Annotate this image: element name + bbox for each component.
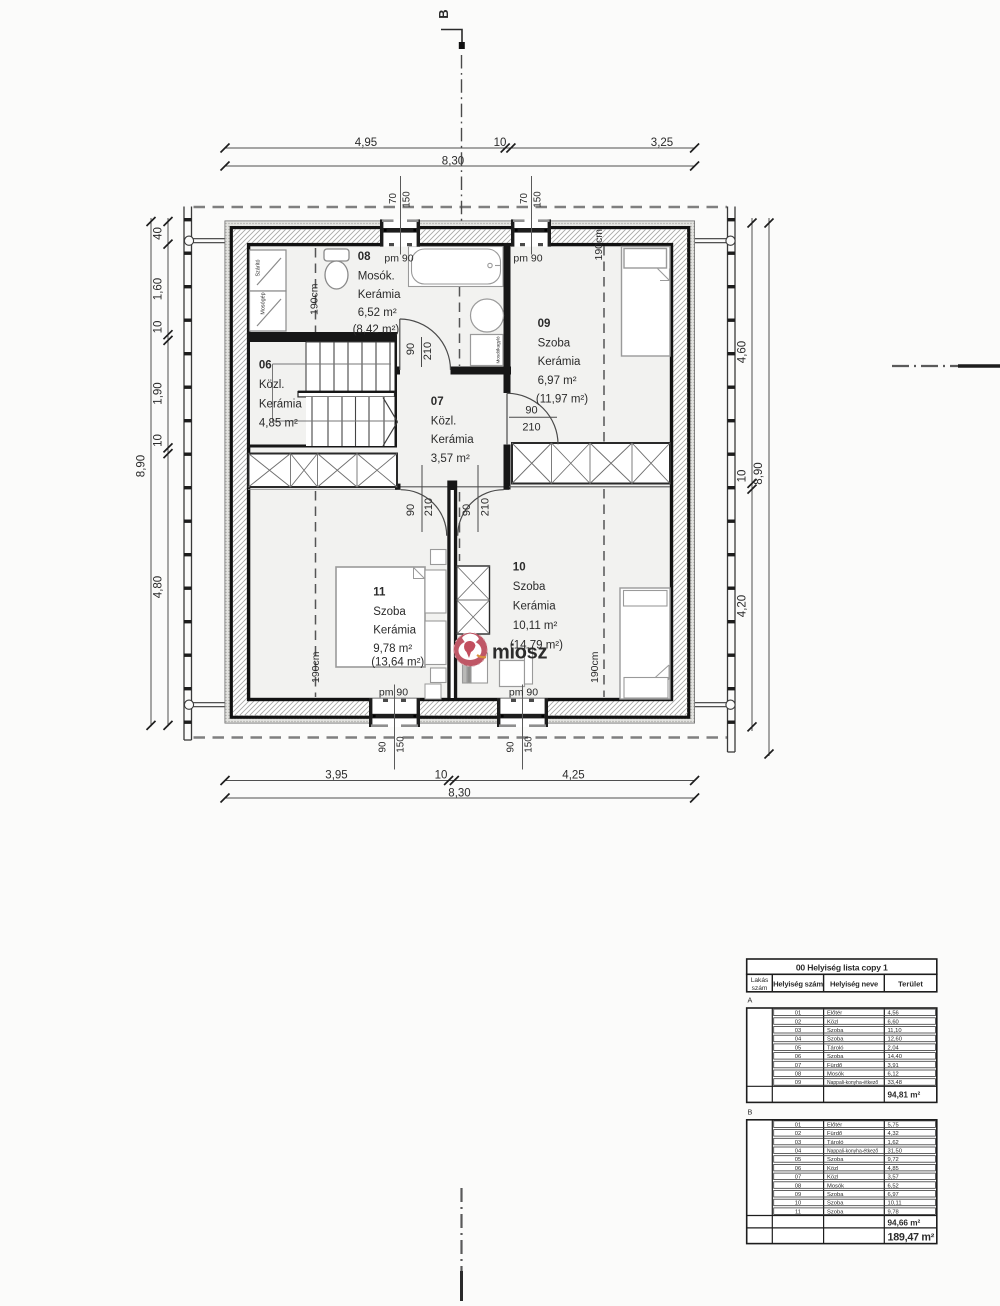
svg-text:miosz: miosz (492, 642, 547, 664)
svg-text:10: 10 (494, 137, 507, 149)
svg-text:1,60: 1,60 (153, 278, 165, 300)
svg-text:Szoba: Szoba (827, 1201, 844, 1207)
svg-text:Közl.: Közl. (259, 379, 285, 391)
svg-text:90: 90 (525, 405, 537, 417)
svg-text:Szoba: Szoba (513, 581, 546, 593)
svg-text:Fürdő: Fürdő (827, 1063, 842, 1069)
svg-text:190cm: 190cm (593, 229, 605, 261)
svg-text:Szoba: Szoba (827, 1157, 844, 1163)
svg-text:04: 04 (795, 1037, 802, 1043)
svg-text:210: 210 (423, 498, 435, 516)
svg-text:40: 40 (153, 227, 165, 240)
svg-text:Tároló: Tároló (827, 1045, 843, 1051)
svg-text:150: 150 (396, 736, 407, 753)
svg-text:14,40: 14,40 (888, 1054, 903, 1060)
svg-text:10: 10 (737, 470, 749, 483)
svg-text:10,11 m²: 10,11 m² (513, 620, 558, 632)
svg-text:4,56: 4,56 (888, 1011, 899, 1017)
svg-text:6,52 m²: 6,52 m² (358, 307, 397, 319)
svg-text:10,11: 10,11 (888, 1201, 902, 1207)
svg-text:10: 10 (513, 562, 526, 574)
svg-text:Mosógép: Mosógép (261, 292, 267, 314)
svg-text:Kerámia: Kerámia (259, 398, 302, 410)
svg-text:10: 10 (153, 434, 165, 447)
svg-text:Szoba: Szoba (827, 1209, 844, 1215)
svg-text:Kerámia: Kerámia (373, 625, 416, 637)
svg-text:08: 08 (795, 1072, 801, 1078)
svg-text:90: 90 (461, 504, 473, 516)
svg-text:04: 04 (795, 1149, 802, 1155)
svg-text:3,57 m²: 3,57 m² (431, 453, 470, 465)
svg-text:Mosók: Mosók (827, 1183, 844, 1189)
svg-text:8,90: 8,90 (136, 455, 148, 477)
svg-text:12,60: 12,60 (888, 1037, 903, 1043)
svg-text:07: 07 (795, 1063, 801, 1069)
svg-text:Szoba: Szoba (373, 606, 406, 618)
svg-text:210: 210 (522, 422, 540, 434)
svg-text:08: 08 (358, 251, 371, 263)
svg-text:Kerámia: Kerámia (431, 434, 474, 446)
svg-text:Szoba: Szoba (827, 1054, 844, 1060)
svg-text:Szárító: Szárító (256, 259, 262, 276)
svg-text:6,60: 6,60 (888, 1019, 899, 1025)
svg-text:(11,97 m²): (11,97 m²) (536, 394, 588, 406)
svg-text:190cm: 190cm (310, 651, 322, 683)
svg-text:06: 06 (259, 360, 272, 372)
svg-text:190cm: 190cm (309, 283, 321, 315)
svg-text:Előtér: Előtér (827, 1122, 842, 1128)
svg-text:4,95: 4,95 (355, 137, 377, 149)
svg-text:190cm: 190cm (589, 651, 601, 683)
svg-text:33,48: 33,48 (888, 1080, 903, 1086)
svg-text:3,25: 3,25 (651, 137, 673, 149)
svg-text:09: 09 (538, 318, 551, 330)
svg-text:9,78 m²: 9,78 m² (373, 643, 412, 655)
svg-text:09: 09 (795, 1080, 801, 1086)
svg-text:05: 05 (795, 1045, 801, 1051)
svg-text:6,97: 6,97 (888, 1192, 899, 1198)
svg-text:Közl: Közl (827, 1166, 838, 1172)
svg-text:6,52: 6,52 (888, 1183, 899, 1189)
svg-text:10: 10 (795, 1201, 801, 1207)
svg-text:70: 70 (519, 193, 530, 204)
svg-text:Szoba: Szoba (827, 1192, 844, 1198)
svg-text:05: 05 (795, 1157, 801, 1163)
svg-text:02: 02 (795, 1131, 801, 1137)
svg-text:Terület: Terület (898, 980, 923, 989)
svg-text:Szoba: Szoba (538, 338, 571, 350)
svg-text:pm 90: pm 90 (509, 687, 538, 699)
svg-text:B: B (436, 9, 451, 18)
svg-text:pm 90: pm 90 (379, 687, 408, 699)
svg-text:Nappali-konyha-étkező: Nappali-konyha-étkező (827, 1149, 878, 1155)
svg-text:3,95: 3,95 (325, 770, 347, 782)
svg-text:03: 03 (795, 1028, 801, 1034)
svg-text:90: 90 (405, 343, 417, 355)
svg-text:Mosdókagyló: Mosdókagyló (496, 336, 501, 364)
svg-text:pm 90: pm 90 (513, 253, 542, 265)
svg-text:10: 10 (153, 321, 165, 334)
svg-text:08: 08 (795, 1183, 801, 1189)
svg-text:Kerámia: Kerámia (358, 289, 401, 301)
svg-text:Szoba: Szoba (827, 1028, 844, 1034)
svg-text:10: 10 (435, 770, 448, 782)
svg-text:(8,42 m²): (8,42 m²) (353, 324, 400, 336)
svg-text:9,72: 9,72 (888, 1157, 899, 1163)
svg-text:4,60: 4,60 (737, 341, 749, 363)
svg-text:94,66 m²: 94,66 m² (888, 1218, 921, 1227)
svg-text:07: 07 (431, 396, 444, 408)
svg-text:70: 70 (388, 193, 399, 204)
svg-text:pm 90: pm 90 (384, 253, 413, 265)
svg-text:11: 11 (373, 587, 386, 599)
svg-text:6,12: 6,12 (888, 1072, 899, 1078)
svg-text:4,85 m²: 4,85 m² (259, 418, 298, 430)
svg-text:5,75: 5,75 (888, 1122, 899, 1128)
svg-text:90: 90 (506, 741, 517, 752)
svg-text:Közl.: Közl. (431, 416, 457, 428)
svg-text:Mosók.: Mosók. (358, 271, 395, 283)
svg-text:Közl: Közl (827, 1175, 838, 1181)
svg-text:4,85: 4,85 (888, 1166, 899, 1172)
svg-text:(13,64 m²): (13,64 m²) (371, 657, 424, 669)
svg-text:Fürdő: Fürdő (827, 1131, 842, 1137)
svg-text:Előtér: Előtér (827, 1011, 842, 1017)
svg-text:Nappali-konyha-étkező: Nappali-konyha-étkező (827, 1080, 878, 1086)
svg-text:02: 02 (795, 1019, 801, 1025)
svg-text:4,32: 4,32 (888, 1131, 899, 1137)
svg-text:210: 210 (422, 342, 434, 360)
svg-text:210: 210 (480, 498, 492, 516)
svg-text:Helyiség szám: Helyiség szám (773, 980, 823, 989)
svg-text:B: B (748, 1108, 753, 1117)
svg-text:8,30: 8,30 (448, 788, 470, 800)
svg-text:03: 03 (795, 1140, 801, 1146)
svg-text:11,10: 11,10 (888, 1028, 902, 1034)
svg-text:9,78: 9,78 (888, 1209, 899, 1215)
svg-text:90: 90 (378, 741, 389, 752)
svg-text:Mosók: Mosók (827, 1072, 844, 1078)
svg-text:Helyiség neve: Helyiség neve (830, 980, 878, 989)
svg-text:11: 11 (795, 1209, 801, 1215)
svg-text:Kerámia: Kerámia (513, 601, 556, 613)
svg-text:1,90: 1,90 (153, 382, 165, 404)
svg-text:150: 150 (524, 736, 535, 753)
svg-text:4,20: 4,20 (737, 595, 749, 617)
svg-text:01: 01 (795, 1011, 801, 1017)
svg-text:A: A (748, 996, 753, 1005)
svg-text:06: 06 (795, 1054, 801, 1060)
svg-text:189,47 m²: 189,47 m² (888, 1232, 935, 1244)
svg-text:09: 09 (795, 1192, 801, 1198)
svg-text:Szoba: Szoba (827, 1037, 844, 1043)
svg-text:4,25: 4,25 (562, 770, 584, 782)
svg-text:Kerámia: Kerámia (538, 356, 581, 368)
svg-text:4,80: 4,80 (153, 576, 165, 598)
svg-text:94,81 m²: 94,81 m² (888, 1091, 921, 1100)
svg-text:06: 06 (795, 1166, 801, 1172)
svg-text:01: 01 (795, 1122, 801, 1128)
svg-text:150: 150 (402, 191, 413, 208)
svg-text:07: 07 (795, 1175, 801, 1181)
svg-text:Közl: Közl (827, 1019, 838, 1025)
svg-text:2,04: 2,04 (888, 1045, 900, 1051)
svg-text:Lakás: Lakás (751, 977, 769, 984)
svg-text:1,62: 1,62 (888, 1140, 899, 1146)
svg-text:3,57: 3,57 (888, 1175, 899, 1181)
svg-text:8,90: 8,90 (753, 462, 765, 484)
svg-text:00 Helyiség lista copy 1: 00 Helyiség lista copy 1 (796, 963, 888, 973)
svg-text:31,50: 31,50 (888, 1149, 903, 1155)
svg-text:3,91: 3,91 (888, 1063, 899, 1069)
svg-text:szám: szám (752, 985, 768, 992)
svg-text:6,97 m²: 6,97 m² (538, 375, 577, 387)
svg-text:150: 150 (533, 191, 544, 208)
svg-text:Tároló: Tároló (827, 1140, 843, 1146)
svg-text:90: 90 (405, 504, 417, 516)
